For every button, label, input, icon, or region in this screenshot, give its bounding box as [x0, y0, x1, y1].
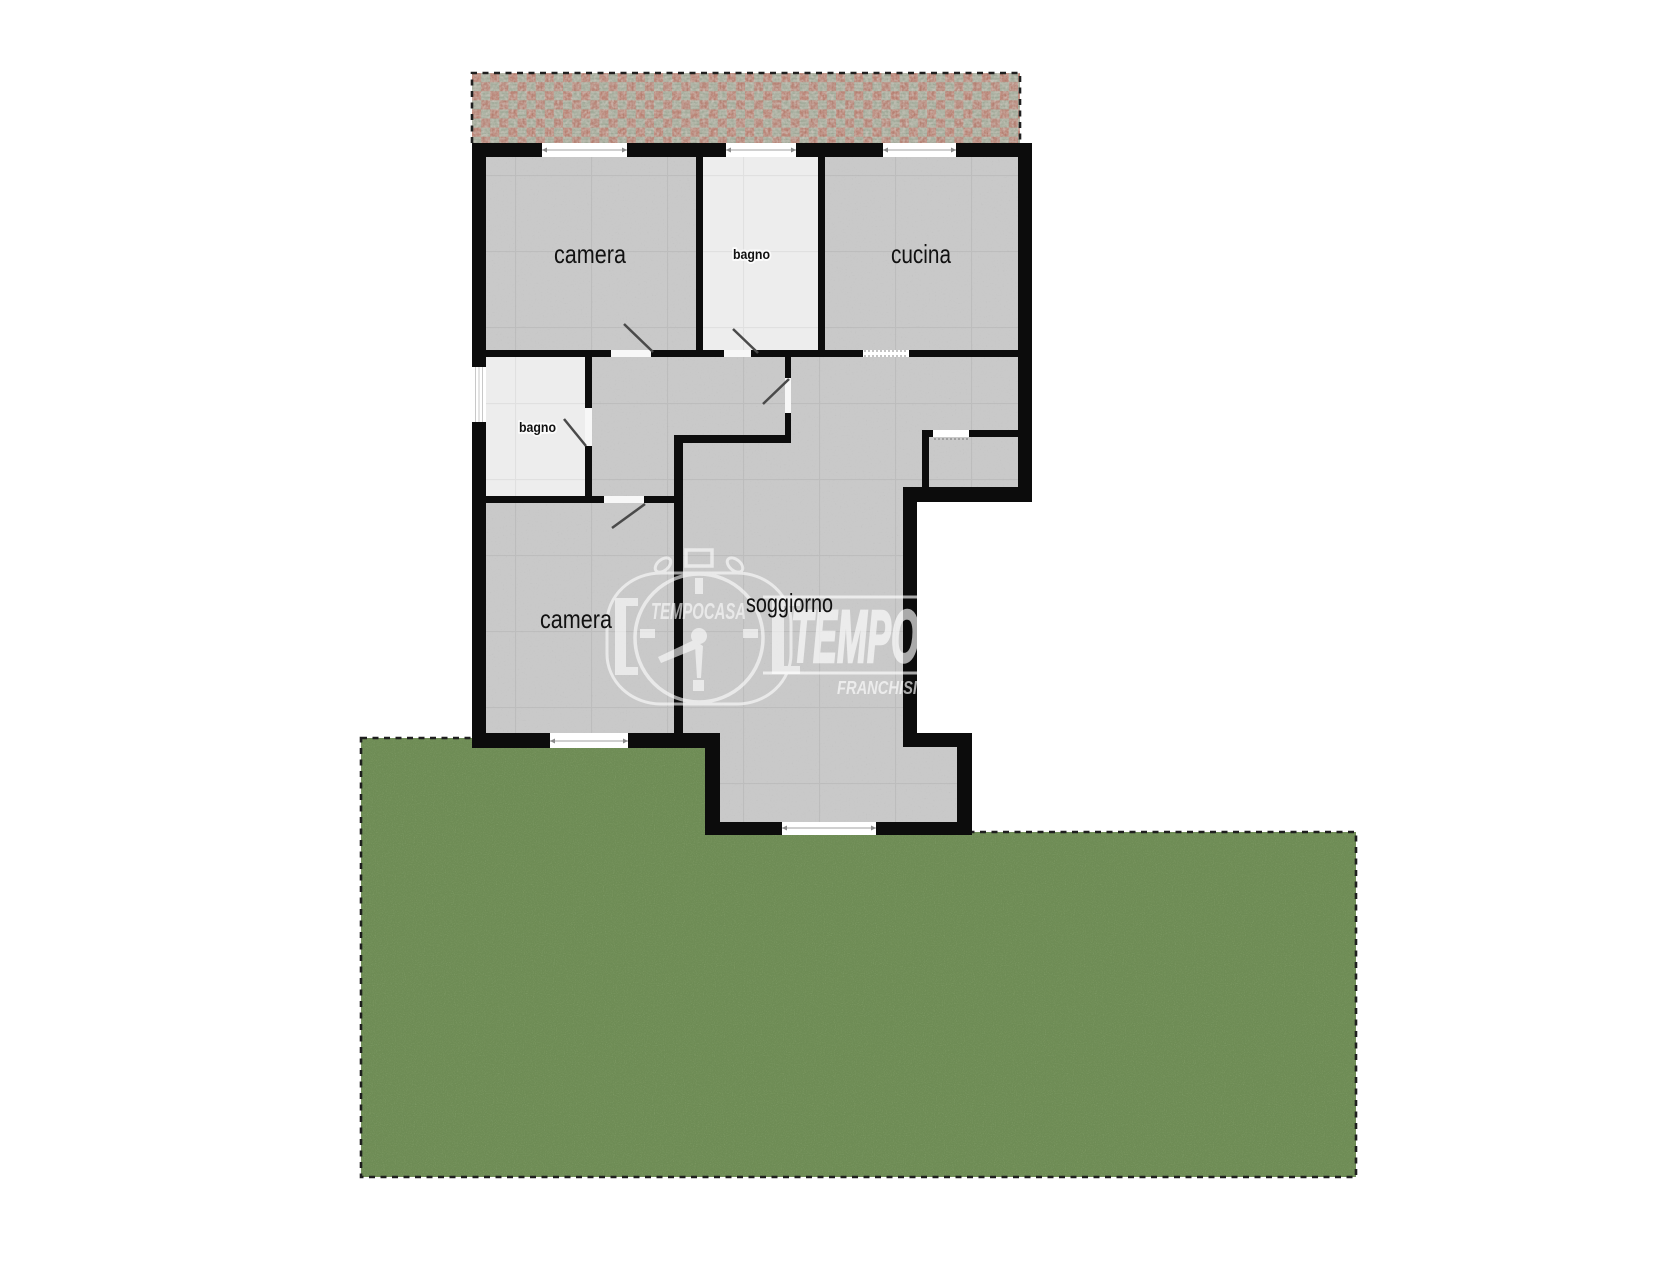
svg-text:FRANCHISING: FRANCHISING — [837, 677, 939, 698]
svg-text:cucina: cucina — [891, 239, 951, 269]
svg-text:bagno: bagno — [733, 246, 770, 262]
svg-text:TEMPOCASA: TEMPOCASA — [651, 598, 746, 624]
svg-text:camera: camera — [540, 604, 612, 634]
svg-text:bagno: bagno — [519, 419, 556, 435]
svg-text:camera: camera — [554, 239, 626, 269]
svg-text:soggiorno: soggiorno — [746, 588, 833, 618]
